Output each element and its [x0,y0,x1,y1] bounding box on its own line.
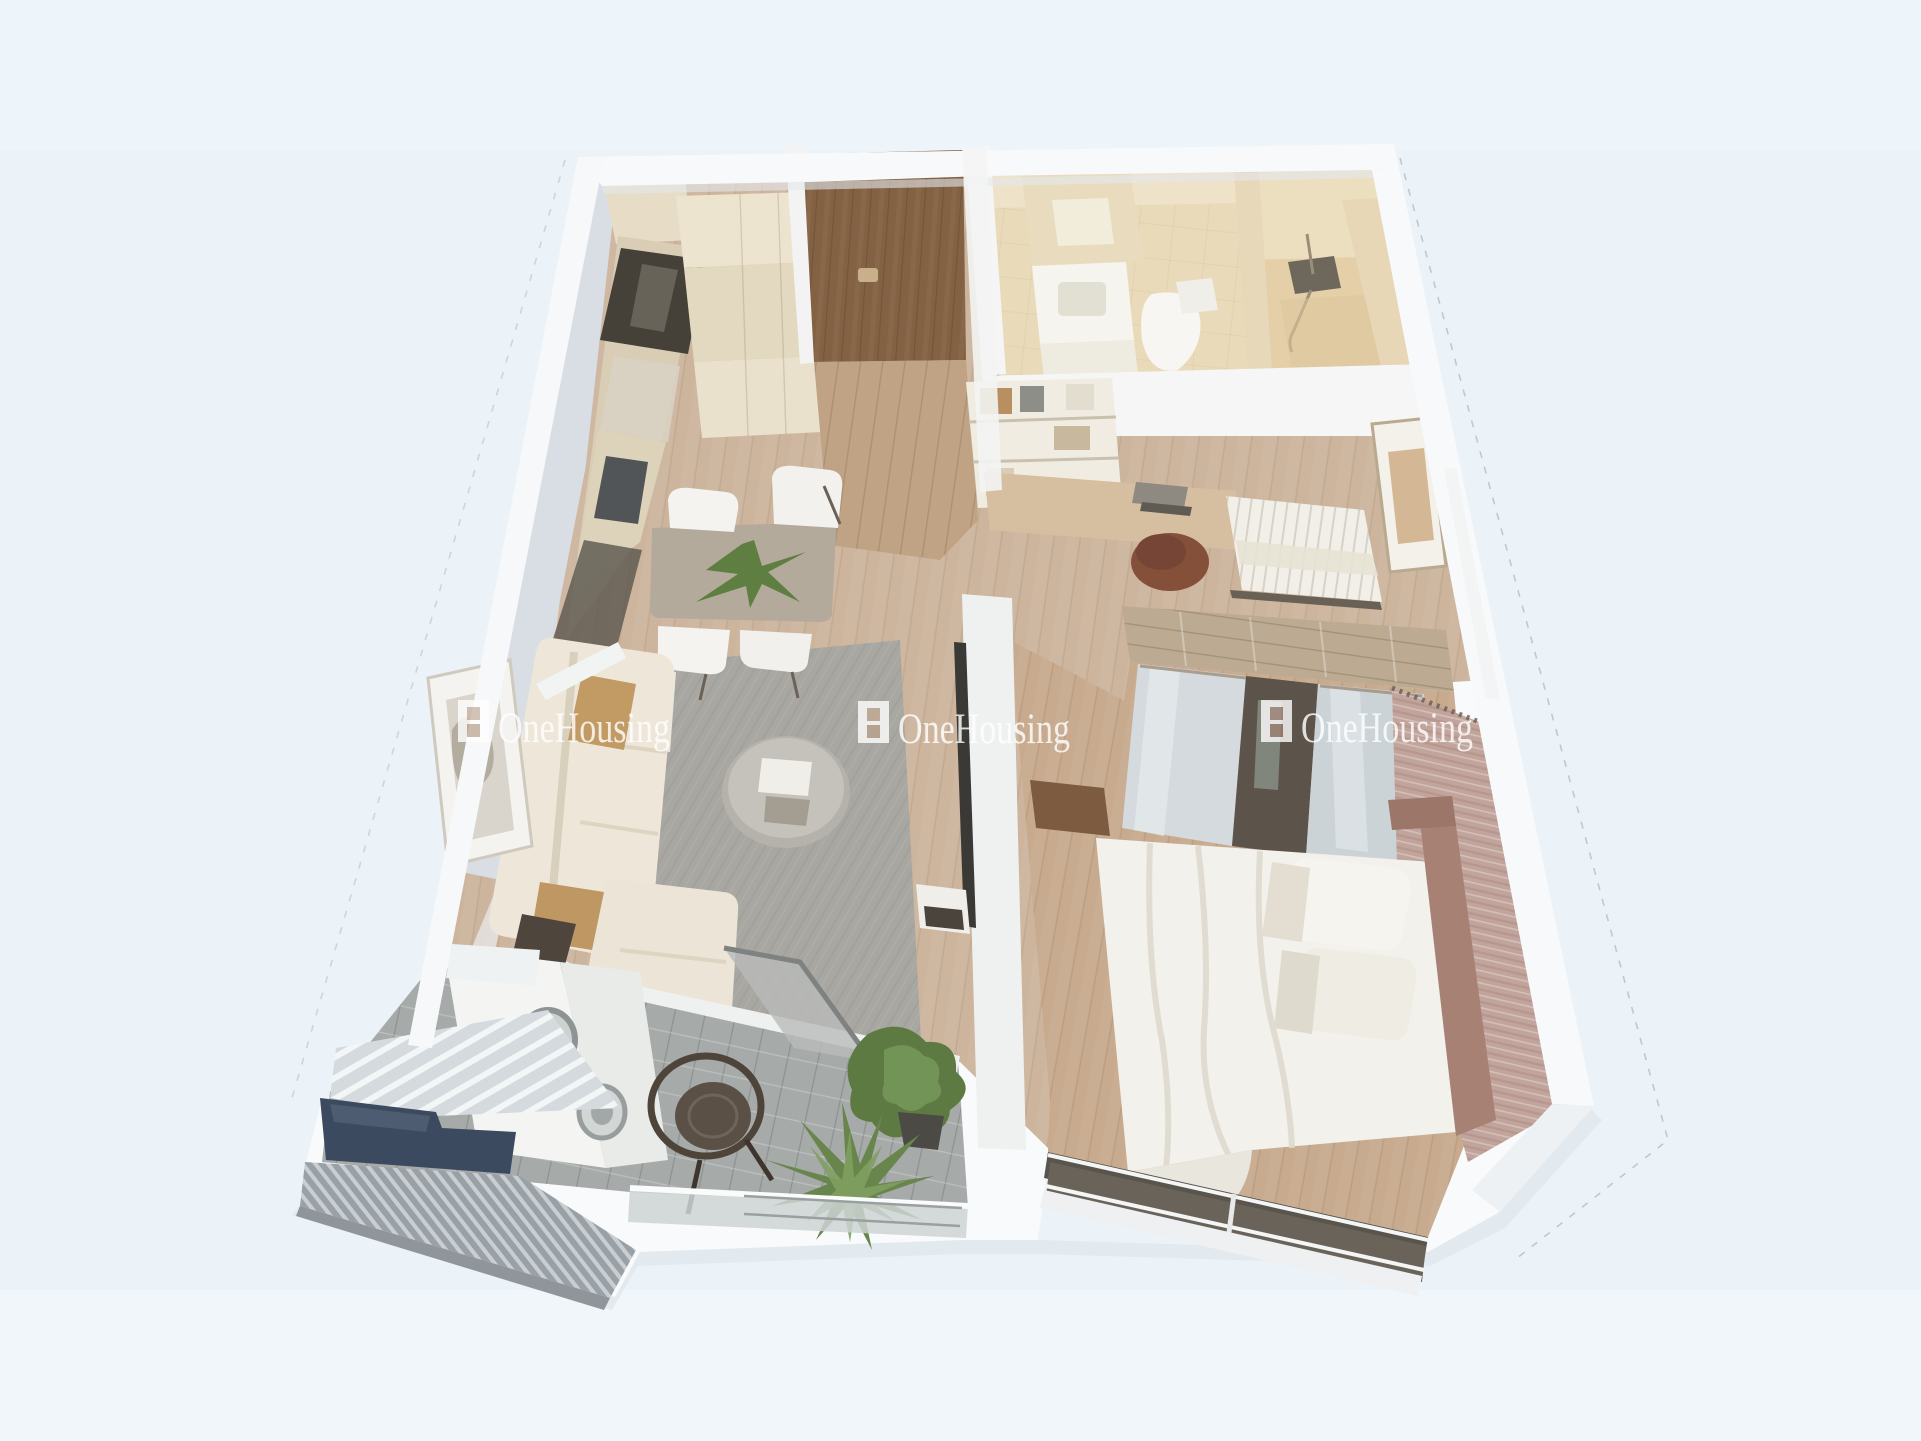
svg-text:OneHousing: OneHousing [1301,705,1473,752]
svg-text:OneHousing: OneHousing [898,706,1070,753]
svg-text:OneHousing: OneHousing [498,705,670,752]
